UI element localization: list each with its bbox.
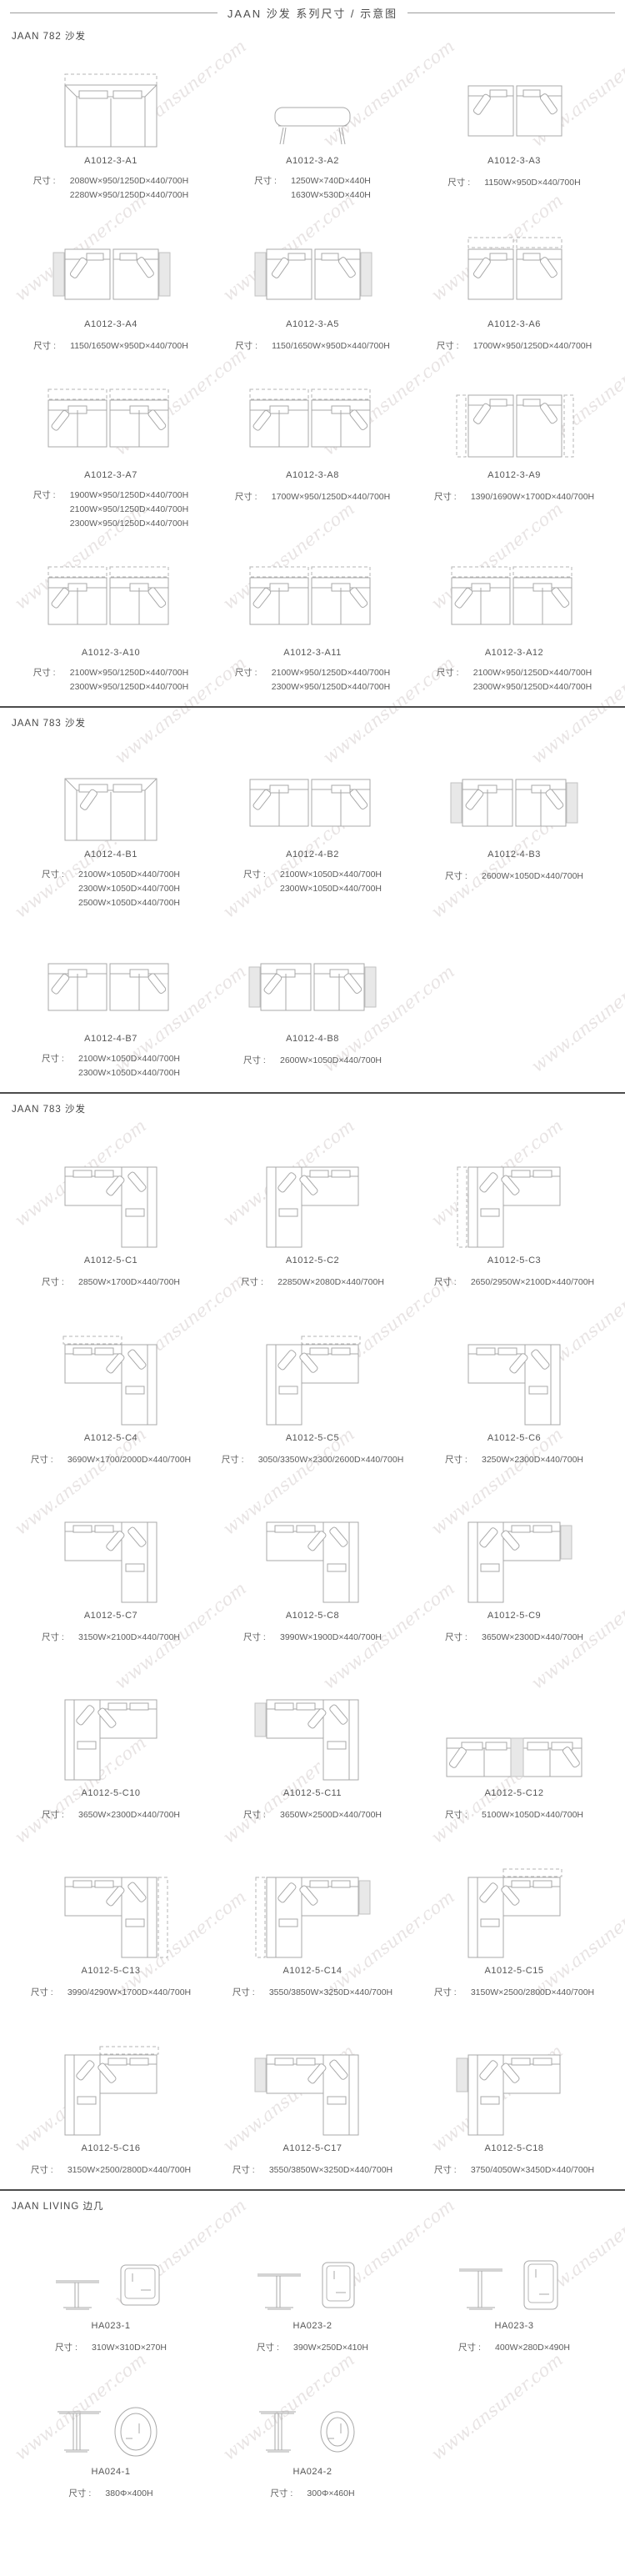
dim-prefix: 尺寸 :	[33, 339, 70, 353]
dimension-line: 尺寸 : 2080W×950/1250D×440/700H	[33, 174, 188, 188]
catalog-item: A1012-3-A10尺寸 : 2100W×950/1250D×440/700H…	[10, 536, 212, 699]
two-sofa-modules-side-panels-plan-drawing	[417, 739, 612, 844]
model-number: A1012-5-C11	[215, 1788, 410, 1798]
dim-value: 2100W×950/1250D×440/700H	[272, 668, 390, 678]
dimension-line: 2280W×950/1250D×440/700H	[33, 188, 188, 203]
dim-value: 2300W×950/1250D×440/700H	[272, 682, 390, 692]
dimension-line: 尺寸 : 1150/1650W×950D×440/700H	[33, 339, 188, 353]
dim-value: 3990/4290W×1700D×440/700H	[67, 1987, 191, 1997]
model-number: A1012-3-A11	[215, 648, 410, 658]
dim-value: 3250W×2300D×440/700H	[482, 1455, 583, 1465]
dimensions: 尺寸 : 3690W×1700/2000D×440/700H	[31, 1453, 191, 1467]
dim-prefix: 尺寸 :	[42, 1631, 78, 1645]
catalog-item: A1012-4-B2尺寸 : 2100W×1050D×440/700H2300W…	[212, 731, 413, 915]
dim-prefix: 尺寸 :	[68, 2487, 105, 2501]
model-number: A1012-5-C9	[417, 1611, 612, 1621]
dim-prefix: 尺寸 :	[232, 2163, 269, 2178]
dim-value: 3650W×2500D×440/700H	[280, 1810, 382, 1820]
dim-value: 2080W×950/1250D×440/700H	[70, 176, 188, 186]
dim-prefix: 尺寸 :	[31, 2163, 67, 2178]
dimension-line: 尺寸 : 3550/3850W×3250D×440/700H	[232, 1986, 392, 2000]
four-seat-sofa-plan-drawing	[417, 1658, 612, 1783]
two-sofa-modules-plan-drawing	[13, 924, 208, 1029]
section: JAAN 783 沙发A1012-5-C1尺寸 : 2850W×1700D×44…	[10, 1092, 615, 2183]
two-chaise-modules-plan-drawing	[417, 216, 612, 314]
dimensions: 尺寸 : 3050/3350W×2300/2600D×440/700H	[222, 1453, 404, 1467]
model-number: A1012-3-A12	[417, 648, 612, 658]
model-number: A1012-3-A9	[417, 470, 612, 480]
catalog-item: HA023-3尺寸 : 400W×280D×490H	[413, 2214, 615, 2360]
dim-prefix: 尺寸 :	[55, 2341, 92, 2355]
catalog-item: A1012-5-C17尺寸 : 3550/3850W×3250D×440/700…	[212, 2005, 413, 2183]
dim-value: 2600W×1050D×440/700H	[280, 1055, 382, 1065]
dim-value: 2300W×1050D×440/700H	[78, 884, 180, 894]
dimension-line: 尺寸 : 390W×250D×410H	[257, 2341, 368, 2355]
dimensions: 尺寸 : 2100W×1050D×440/700H2300W×1050D×440…	[243, 868, 382, 896]
dimension-line: 尺寸 : 1900W×950/1250D×440/700H	[33, 489, 188, 503]
dimensions: 尺寸 : 2100W×1050D×440/700H2300W×1050D×440…	[42, 868, 180, 910]
dimensions: 尺寸 : 2100W×1050D×440/700H2300W×1050D×440…	[42, 1052, 180, 1080]
dimension-line: 尺寸 : 3650W×2300D×440/700H	[42, 1808, 180, 1822]
catalog-item: A1012-3-A12尺寸 : 2100W×950/1250D×440/700H…	[413, 536, 615, 699]
section-title: JAAN LIVING 边几	[12, 2199, 615, 2213]
dimensions: 尺寸 : 3150W×2500/2800D×440/700H	[434, 1986, 594, 2000]
two-sofa-modules-plan-drawing	[215, 739, 410, 844]
dimensions: 尺寸 : 3750/4050W×3450D×440/700H	[434, 2163, 594, 2178]
model-number: HA024-2	[215, 2467, 410, 2477]
dimensions: 尺寸 : 3990/4290W×1700D×440/700H	[31, 1986, 191, 2000]
dim-value: 1630W×530D×440H	[291, 190, 371, 200]
dim-prefix: 尺寸 :	[232, 1986, 269, 2000]
dimensions: 尺寸 : 380Φ×400H	[68, 2487, 152, 2501]
model-number: A1012-3-A7	[13, 470, 208, 480]
dimension-line: 尺寸 : 3050/3350W×2300/2600D×440/700H	[222, 1453, 404, 1467]
l-sectional-plan-drawing	[13, 1303, 208, 1428]
catalog-item: A1012-3-A7尺寸 : 1900W×950/1250D×440/700H2…	[10, 358, 212, 536]
dimension-line: 尺寸 : 3150W×2100D×440/700H	[42, 1631, 180, 1645]
dim-value: 1900W×950/1250D×440/700H	[70, 490, 188, 500]
dim-value: 2850W×1700D×440/700H	[78, 1277, 180, 1287]
dimension-line: 2500W×1050D×440/700H	[42, 896, 180, 910]
side-table-square-drawing	[417, 2223, 612, 2316]
page-header: JAAN 沙发 系列尺寸 / 示意图	[10, 0, 615, 21]
item-grid: HA023-1尺寸 : 310W×310D×270HHA023-2尺寸 : 39…	[10, 2214, 615, 2506]
dim-prefix: 尺寸 :	[31, 1453, 67, 1467]
dimensions: 尺寸 : 2600W×1050D×440/700H	[243, 1054, 382, 1068]
catalog-item: A1012-4-B3尺寸 : 2600W×1050D×440/700H	[413, 731, 615, 915]
dim-value: 2650/2950W×2100D×440/700H	[471, 1277, 594, 1287]
dim-value: 2600W×1050D×440/700H	[482, 871, 583, 881]
dim-prefix: 尺寸 :	[235, 339, 272, 353]
model-number: A1012-5-C2	[215, 1255, 410, 1265]
model-number: A1012-5-C16	[13, 2143, 208, 2153]
model-number: A1012-4-B1	[13, 849, 208, 860]
model-number: A1012-5-C10	[13, 1788, 208, 1798]
catalog-item: A1012-5-C16尺寸 : 3150W×2500/2800D×440/700…	[10, 2005, 212, 2183]
dimensions: 尺寸 : 2650/2950W×2100D×440/700H	[434, 1275, 594, 1290]
two-seat-sofa-plan-drawing	[13, 53, 208, 151]
catalog-item: A1012-5-C2尺寸 : 22850W×2080D×440/700H	[212, 1117, 413, 1295]
header-rule-right	[407, 13, 615, 13]
catalog-item: HA023-2尺寸 : 390W×250D×410H	[212, 2214, 413, 2360]
dim-value: 2100W×1050D×440/700H	[78, 1054, 180, 1064]
dimension-line: 尺寸 : 2100W×1050D×440/700H	[42, 1052, 180, 1066]
dimension-line: 尺寸 : 3650W×2500D×440/700H	[243, 1808, 382, 1822]
dim-value: 2100W×1050D×440/700H	[78, 870, 180, 880]
l-sectional-plan-drawing	[215, 2013, 410, 2138]
dimensions: 尺寸 : 2600W×1050D×440/700H	[445, 870, 583, 884]
model-number: A1012-5-C12	[417, 1788, 612, 1798]
model-number: A1012-3-A4	[13, 319, 208, 329]
dimension-line: 尺寸 : 2650/2950W×2100D×440/700H	[434, 1275, 594, 1290]
model-number: HA023-1	[13, 2321, 208, 2331]
dimension-line: 尺寸 : 2100W×1050D×440/700H	[42, 868, 180, 882]
dimension-line: 尺寸 : 2100W×950/1250D×440/700H	[437, 666, 592, 680]
catalog-item: A1012-5-C15尺寸 : 3150W×2500/2800D×440/700…	[413, 1827, 615, 2005]
catalog-item: A1012-3-A9尺寸 : 1390/1690W×1700D×440/700H	[413, 358, 615, 536]
dim-value: 3150W×2500/2800D×440/700H	[471, 1987, 594, 1997]
dimension-line: 尺寸 : 2100W×950/1250D×440/700H	[235, 666, 390, 680]
model-number: A1012-3-A10	[13, 648, 208, 658]
model-number: A1012-4-B3	[417, 849, 612, 860]
dim-value: 380Φ×400H	[105, 2488, 152, 2498]
dimension-line: 尺寸 : 1250W×740D×440H	[254, 174, 371, 188]
dim-prefix: 尺寸 :	[445, 1808, 482, 1822]
model-number: A1012-4-B7	[13, 1034, 208, 1044]
dimension-line: 2300W×1050D×440/700H	[42, 1066, 180, 1080]
model-number: A1012-3-A8	[215, 470, 410, 480]
dimensions: 尺寸 : 3650W×2500D×440/700H	[243, 1808, 382, 1822]
catalog-item: A1012-5-C9尺寸 : 3650W×2300D×440/700H	[413, 1472, 615, 1650]
dimensions: 尺寸 : 1900W×950/1250D×440/700H2100W×950/1…	[33, 489, 188, 531]
model-number: A1012-3-A5	[215, 319, 410, 329]
section-divider	[0, 1092, 625, 1094]
dimension-line: 2300W×950/1250D×440/700H	[437, 680, 592, 694]
catalog-item: A1012-3-A3尺寸 : 1150W×950D×440/700H	[413, 44, 615, 208]
l-sectional-plan-drawing	[13, 1125, 208, 1250]
dimensions: 尺寸 : 3550/3850W×3250D×440/700H	[232, 2163, 392, 2178]
two-seat-sofa-plan-drawing	[13, 739, 208, 844]
model-number: A1012-3-A6	[417, 319, 612, 329]
l-sectional-plan-drawing	[215, 1125, 410, 1250]
dim-value: 3550/3850W×3250D×440/700H	[269, 1987, 392, 1997]
catalog-item: A1012-5-C8尺寸 : 3990W×1900D×440/700H	[212, 1472, 413, 1650]
catalog-item: A1012-3-A8尺寸 : 1700W×950/1250D×440/700H	[212, 358, 413, 536]
dim-value: 1390/1690W×1700D×440/700H	[471, 492, 594, 502]
dim-value: 400W×280D×490H	[495, 2343, 570, 2353]
dim-prefix: 尺寸 :	[42, 1808, 78, 1822]
dim-value: 300Φ×460H	[307, 2488, 354, 2498]
l-sectional-plan-drawing	[417, 1125, 612, 1250]
dim-value: 1150W×950D×440/700H	[484, 178, 580, 188]
dim-prefix: 尺寸 :	[33, 666, 70, 680]
model-number: A1012-5-C5	[215, 1433, 410, 1443]
dimension-line: 2300W×950/1250D×440/700H	[33, 517, 188, 531]
dimensions: 尺寸 : 3650W×2300D×440/700H	[42, 1808, 180, 1822]
l-sectional-plan-drawing	[417, 2013, 612, 2138]
section-title: JAAN 783 沙发	[12, 716, 615, 729]
dimensions: 尺寸 : 5100W×1050D×440/700H	[445, 1808, 583, 1822]
dimensions: 尺寸 : 400W×280D×490H	[458, 2341, 570, 2355]
dim-value: 22850W×2080D×440/700H	[277, 1277, 384, 1287]
two-chairs-side-tables-plan-drawing	[215, 216, 410, 314]
dim-prefix: 尺寸 :	[445, 870, 482, 884]
l-sectional-plan-drawing	[215, 1303, 410, 1428]
two-corner-chairs-plan-drawing	[417, 53, 612, 151]
catalog-item: A1012-5-C4尺寸 : 3690W×1700/2000D×440/700H	[10, 1295, 212, 1472]
dim-prefix: 尺寸 :	[243, 1054, 280, 1068]
section-title: JAAN 782 沙发	[12, 29, 615, 43]
dimension-line: 尺寸 : 300Φ×460H	[270, 2487, 354, 2501]
dimensions: 尺寸 : 3550/3850W×3250D×440/700H	[232, 1986, 392, 2000]
dim-prefix: 尺寸 :	[437, 339, 473, 353]
dimension-line: 尺寸 : 1390/1690W×1700D×440/700H	[434, 490, 594, 504]
dim-prefix: 尺寸 :	[447, 176, 484, 190]
l-sectional-plan-drawing	[417, 1836, 612, 1961]
catalog-item: A1012-3-A5尺寸 : 1150/1650W×950D×440/700H	[212, 208, 413, 358]
dim-value: 1700W×950/1250D×440/700H	[473, 341, 592, 351]
section: JAAN LIVING 边几HA023-1尺寸 : 310W×310D×270H…	[10, 2189, 615, 2506]
dimension-line: 1630W×530D×440H	[254, 188, 371, 203]
dimension-line: 尺寸 : 3990/4290W×1700D×440/700H	[31, 1986, 191, 2000]
dimension-line: 尺寸 : 3690W×1700/2000D×440/700H	[31, 1453, 191, 1467]
dim-value: 2300W×950/1250D×440/700H	[70, 519, 188, 529]
dimension-line: 尺寸 : 3990W×1900D×440/700H	[243, 1631, 382, 1645]
dim-value: 5100W×1050D×440/700H	[482, 1810, 583, 1820]
dimensions: 尺寸 : 2100W×950/1250D×440/700H2300W×950/1…	[437, 666, 592, 694]
model-number: HA023-2	[215, 2321, 410, 2331]
dim-value: 1700W×950/1250D×440/700H	[272, 492, 390, 502]
catalog-item: A1012-5-C12尺寸 : 5100W×1050D×440/700H	[413, 1650, 615, 1827]
dim-value: 2300W×1050D×440/700H	[78, 1068, 180, 1078]
dim-prefix: 尺寸 :	[445, 1631, 482, 1645]
model-number: A1012-3-A1	[13, 156, 208, 166]
catalog-item: A1012-3-A11尺寸 : 2100W×950/1250D×440/700H…	[212, 536, 413, 699]
model-number: A1012-5-C7	[13, 1611, 208, 1621]
dim-prefix: 尺寸 :	[235, 490, 272, 504]
dimensions: 尺寸 : 2100W×950/1250D×440/700H2300W×950/1…	[33, 666, 188, 694]
catalog-item: A1012-5-C14尺寸 : 3550/3850W×3250D×440/700…	[212, 1827, 413, 2005]
catalog-item: A1012-4-B8尺寸 : 2600W×1050D×440/700H	[212, 915, 413, 1085]
model-number: A1012-5-C18	[417, 2143, 612, 2153]
side-table-square-drawing	[13, 2223, 208, 2316]
two-sofa-modules-plan-drawing	[417, 544, 612, 643]
dim-prefix: 尺寸 :	[243, 1631, 280, 1645]
dim-prefix: 尺寸 :	[434, 1986, 471, 2000]
catalog-item: A1012-5-C11尺寸 : 3650W×2500D×440/700H	[212, 1650, 413, 1827]
model-number: A1012-5-C15	[417, 1966, 612, 1976]
model-number: A1012-5-C3	[417, 1255, 612, 1265]
catalog-item: HA023-1尺寸 : 310W×310D×270H	[10, 2214, 212, 2360]
l-sectional-plan-drawing	[417, 1303, 612, 1428]
dim-prefix: 尺寸 :	[235, 666, 272, 680]
dimensions: 尺寸 : 3250W×2300D×440/700H	[445, 1453, 583, 1467]
two-sofa-modules-plan-drawing	[13, 544, 208, 643]
dim-value: 1150/1650W×950D×440/700H	[70, 341, 188, 351]
two-sofa-modules-plan-drawing	[13, 367, 208, 465]
dim-value: 3150W×2500/2800D×440/700H	[67, 2165, 191, 2175]
catalog-item: A1012-5-C1尺寸 : 2850W×1700D×440/700H	[10, 1117, 212, 1295]
dim-prefix: 尺寸 :	[42, 1052, 78, 1066]
dimensions: 尺寸 : 2100W×950/1250D×440/700H2300W×950/1…	[235, 666, 390, 694]
dim-value: 2500W×1050D×440/700H	[78, 898, 180, 908]
dimension-line: 尺寸 : 2100W×1050D×440/700H	[243, 868, 382, 882]
dim-prefix: 尺寸 :	[445, 1453, 482, 1467]
dim-value: 2280W×950/1250D×440/700H	[70, 190, 188, 200]
dim-prefix: 尺寸 :	[458, 2341, 495, 2355]
dimension-line: 2300W×950/1250D×440/700H	[33, 680, 188, 694]
dim-prefix: 尺寸 :	[33, 174, 70, 188]
bench-side-view-drawing	[215, 53, 410, 151]
dimension-line: 尺寸 : 2100W×950/1250D×440/700H	[33, 666, 188, 680]
two-sofa-modules-plan-drawing	[215, 544, 410, 643]
catalog-item: A1012-5-C10尺寸 : 3650W×2300D×440/700H	[10, 1650, 212, 1827]
dimension-line: 尺寸 : 3250W×2300D×440/700H	[445, 1453, 583, 1467]
dim-value: 2300W×1050D×440/700H	[280, 884, 382, 894]
dimension-line: 尺寸 : 3150W×2500/2800D×440/700H	[434, 1986, 594, 2000]
l-sectional-plan-drawing	[13, 1481, 208, 1606]
dim-value: 390W×250D×410H	[293, 2343, 368, 2353]
model-number: A1012-5-C17	[215, 2143, 410, 2153]
dim-prefix: 尺寸 :	[42, 868, 78, 882]
dim-value: 1250W×740D×440H	[291, 176, 371, 186]
catalog-item: A1012-4-B7尺寸 : 2100W×1050D×440/700H2300W…	[10, 915, 212, 1085]
dimension-line: 尺寸 : 310W×310D×270H	[55, 2341, 167, 2355]
dimensions: 尺寸 : 1390/1690W×1700D×440/700H	[434, 490, 594, 504]
dim-prefix: 尺寸 :	[222, 1453, 258, 1467]
dimension-line: 尺寸 : 2600W×1050D×440/700H	[445, 870, 583, 884]
dimensions: 尺寸 : 22850W×2080D×440/700H	[241, 1275, 384, 1290]
model-number: A1012-5-C13	[13, 1966, 208, 1976]
catalog-page: JAAN 沙发 系列尺寸 / 示意图 JAAN 782 沙发A1012-3-A1…	[0, 0, 625, 2523]
model-number: A1012-5-C4	[13, 1433, 208, 1443]
model-number: A1012-5-C6	[417, 1433, 612, 1443]
dimensions: 尺寸 : 1150/1650W×950D×440/700H	[33, 339, 188, 353]
dimension-line: 2300W×1050D×440/700H	[42, 882, 180, 896]
model-number: A1012-5-C14	[215, 1966, 410, 1976]
catalog-item: A1012-5-C3尺寸 : 2650/2950W×2100D×440/700H	[413, 1117, 615, 1295]
dimensions: 尺寸 : 390W×250D×410H	[257, 2341, 368, 2355]
side-table-square-drawing	[215, 2223, 410, 2316]
dim-value: 2300W×950/1250D×440/700H	[70, 682, 188, 692]
l-sectional-plan-drawing	[215, 1658, 410, 1783]
dimension-line: 尺寸 : 3650W×2300D×440/700H	[445, 1631, 583, 1645]
dimensions: 尺寸 : 3150W×2500/2800D×440/700H	[31, 2163, 191, 2178]
two-chairs-side-tables-plan-drawing	[13, 216, 208, 314]
dimension-line: 尺寸 : 3150W×2500/2800D×440/700H	[31, 2163, 191, 2178]
dim-prefix: 尺寸 :	[243, 1808, 280, 1822]
dimension-line: 尺寸 : 3550/3850W×3250D×440/700H	[232, 2163, 392, 2178]
dimension-line: 2300W×950/1250D×440/700H	[235, 680, 390, 694]
l-sectional-plan-drawing	[13, 2013, 208, 2138]
catalog-item: A1012-3-A4尺寸 : 1150/1650W×950D×440/700H	[10, 208, 212, 358]
catalog-item: A1012-5-C5尺寸 : 3050/3350W×2300/2600D×440…	[212, 1295, 413, 1472]
dimension-line: 2100W×950/1250D×440/700H	[33, 503, 188, 517]
dimension-line: 尺寸 : 1700W×950/1250D×440/700H	[437, 339, 592, 353]
model-number: A1012-4-B8	[215, 1034, 410, 1044]
two-tall-modules-plan-drawing	[417, 367, 612, 465]
dim-prefix: 尺寸 :	[42, 1275, 78, 1290]
dim-prefix: 尺寸 :	[31, 1986, 67, 2000]
section: JAAN 783 沙发A1012-4-B1尺寸 : 2100W×1050D×44…	[10, 706, 615, 1085]
dimensions: 尺寸 : 310W×310D×270H	[55, 2341, 167, 2355]
dimension-line: 尺寸 : 400W×280D×490H	[458, 2341, 570, 2355]
dim-value: 3550/3850W×3250D×440/700H	[269, 2165, 392, 2175]
dimension-line: 尺寸 : 380Φ×400H	[68, 2487, 152, 2501]
dim-prefix: 尺寸 :	[33, 489, 70, 503]
catalog-item: A1012-5-C7尺寸 : 3150W×2100D×440/700H	[10, 1472, 212, 1650]
catalog-item: A1012-3-A6尺寸 : 1700W×950/1250D×440/700H	[413, 208, 615, 358]
catalog-item: HA024-2尺寸 : 300Φ×460H	[212, 2360, 413, 2506]
model-number: A1012-4-B2	[215, 849, 410, 860]
l-sectional-plan-drawing	[13, 1658, 208, 1783]
dimensions: 尺寸 : 2080W×950/1250D×440/700H2280W×950/1…	[33, 174, 188, 203]
dim-value: 2100W×1050D×440/700H	[280, 870, 382, 880]
section-divider	[0, 706, 625, 708]
model-number: A1012-5-C1	[13, 1255, 208, 1265]
item-grid: A1012-5-C1尺寸 : 2850W×1700D×440/700HA1012…	[10, 1117, 615, 2183]
dim-value: 3150W×2100D×440/700H	[78, 1632, 180, 1642]
dim-value: 1150/1650W×950D×440/700H	[272, 341, 390, 351]
dimensions: 尺寸 : 1250W×740D×440H1630W×530D×440H	[254, 174, 371, 203]
dim-prefix: 尺寸 :	[270, 2487, 307, 2501]
dim-value: 310W×310D×270H	[92, 2343, 167, 2353]
dimension-line: 尺寸 : 22850W×2080D×440/700H	[241, 1275, 384, 1290]
dimension-line: 2300W×1050D×440/700H	[243, 882, 382, 896]
dim-prefix: 尺寸 :	[241, 1275, 277, 1290]
side-table-round-drawing	[13, 2368, 208, 2462]
item-grid: A1012-4-B1尺寸 : 2100W×1050D×440/700H2300W…	[10, 731, 615, 1085]
dim-value: 3650W×2300D×440/700H	[482, 1632, 583, 1642]
model-number: A1012-3-A3	[417, 156, 612, 166]
dimensions: 尺寸 : 2850W×1700D×440/700H	[42, 1275, 180, 1290]
dim-prefix: 尺寸 :	[243, 868, 280, 882]
dim-value: 3050/3350W×2300/2600D×440/700H	[258, 1455, 404, 1465]
dimensions: 尺寸 : 1150/1650W×950D×440/700H	[235, 339, 390, 353]
dimensions: 尺寸 : 3650W×2300D×440/700H	[445, 1631, 583, 1645]
dim-value: 2100W×950/1250D×440/700H	[473, 668, 592, 678]
dimension-line: 尺寸 : 1150/1650W×950D×440/700H	[235, 339, 390, 353]
dim-value: 3650W×2300D×440/700H	[78, 1810, 180, 1820]
l-sectional-plan-drawing	[215, 1481, 410, 1606]
dimensions: 尺寸 : 3990W×1900D×440/700H	[243, 1631, 382, 1645]
dim-value: 3690W×1700/2000D×440/700H	[67, 1455, 191, 1465]
l-sectional-plan-drawing	[215, 1836, 410, 1961]
dim-value: 2300W×950/1250D×440/700H	[473, 682, 592, 692]
two-sofa-modules-side-panels-plan-drawing	[215, 924, 410, 1029]
dim-prefix: 尺寸 :	[254, 174, 291, 188]
catalog-item: A1012-5-C13尺寸 : 3990/4290W×1700D×440/700…	[10, 1827, 212, 2005]
sections-container: JAAN 782 沙发A1012-3-A1尺寸 : 2080W×950/1250…	[10, 29, 615, 2506]
dimensions: 尺寸 : 3150W×2100D×440/700H	[42, 1631, 180, 1645]
dimension-line: 尺寸 : 1700W×950/1250D×440/700H	[235, 490, 390, 504]
l-sectional-plan-drawing	[417, 1481, 612, 1606]
header-rule-left	[10, 13, 217, 13]
item-grid: A1012-3-A1尺寸 : 2080W×950/1250D×440/700H2…	[10, 44, 615, 699]
catalog-item: HA024-1尺寸 : 380Φ×400H	[10, 2360, 212, 2506]
dim-value: 2100W×950/1250D×440/700H	[70, 504, 188, 514]
catalog-item: A1012-5-C6尺寸 : 3250W×2300D×440/700H	[413, 1295, 615, 1472]
dimension-line: 尺寸 : 1150W×950D×440/700H	[447, 176, 580, 190]
model-number: A1012-5-C8	[215, 1611, 410, 1621]
dimension-line: 尺寸 : 2600W×1050D×440/700H	[243, 1054, 382, 1068]
section-title: JAAN 783 沙发	[12, 1102, 615, 1115]
dimensions: 尺寸 : 1150W×950D×440/700H	[447, 176, 580, 190]
dimension-line: 尺寸 : 3750/4050W×3450D×440/700H	[434, 2163, 594, 2178]
model-number: HA024-1	[13, 2467, 208, 2477]
dim-prefix: 尺寸 :	[257, 2341, 293, 2355]
section-divider	[0, 2189, 625, 2191]
